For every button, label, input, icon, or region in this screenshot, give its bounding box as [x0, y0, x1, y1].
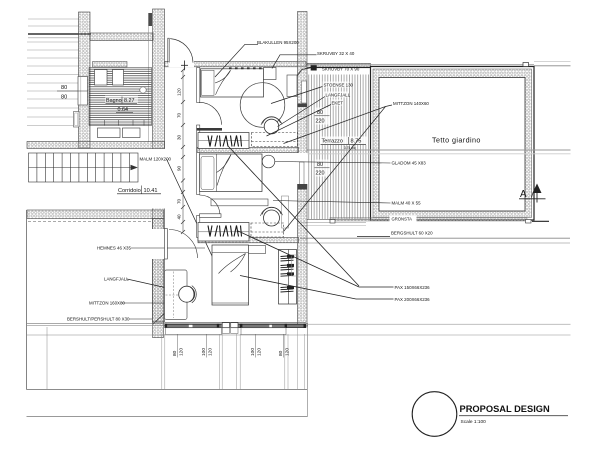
svg-text:80: 80 — [317, 162, 323, 168]
svg-text:MITTZON 160X80: MITTZON 160X80 — [89, 301, 125, 306]
svg-text:120: 120 — [207, 348, 213, 356]
svg-text:8.75: 8.75 — [351, 139, 362, 145]
svg-text:80: 80 — [278, 350, 284, 356]
svg-text:120: 120 — [178, 348, 184, 356]
svg-text:LANGFJALL: LANGFJALL — [326, 93, 351, 98]
svg-text:8.27: 8.27 — [124, 98, 135, 104]
svg-text:A: A — [520, 189, 527, 200]
svg-text:40: 40 — [177, 214, 182, 220]
svg-text:LANGFJALL: LANGFJALL — [104, 277, 129, 282]
svg-text:120: 120 — [256, 348, 262, 356]
svg-text:80: 80 — [61, 95, 67, 101]
svg-text:PAX 200X66X236: PAX 200X66X236 — [395, 297, 431, 302]
svg-text:10.41: 10.41 — [144, 188, 158, 194]
svg-text:70: 70 — [177, 198, 182, 204]
svg-text:90: 90 — [177, 165, 182, 171]
svg-text:SKRUVBY 70 X 90: SKRUVBY 70 X 90 — [322, 66, 360, 71]
svg-text:100: 100 — [201, 348, 207, 356]
svg-text:EKET: EKET — [332, 101, 344, 106]
svg-text:3.75 mq: 3.75 mq — [344, 146, 356, 150]
svg-text:PROPOSAL DESIGN: PROPOSAL DESIGN — [460, 404, 551, 414]
svg-text:120: 120 — [177, 88, 182, 96]
svg-text:GRONSTA: GRONSTA — [392, 216, 413, 221]
svg-text:80: 80 — [172, 350, 178, 356]
svg-text:Corridoio: Corridoio — [118, 188, 141, 194]
svg-text:80: 80 — [61, 85, 67, 91]
svg-text:MITTZON 140X60: MITTZON 140X60 — [393, 101, 429, 106]
svg-text:BERGSHULT 60 X20: BERGSHULT 60 X20 — [391, 231, 433, 236]
svg-text:GLADOM 45 X83: GLADOM 45 X83 — [392, 161, 427, 166]
svg-text:Tetto giardino: Tetto giardino — [432, 136, 481, 145]
svg-text:100: 100 — [250, 348, 256, 356]
svg-text:Terrazzo: Terrazzo — [322, 139, 343, 145]
svg-text:120: 120 — [284, 348, 290, 356]
svg-text:PAX 150X66X236: PAX 150X66X236 — [395, 285, 431, 290]
svg-text:Scale 1:100: Scale 1:100 — [461, 419, 487, 425]
svg-text:Bagno: Bagno — [106, 98, 122, 104]
svg-text:MALM 40 X 55: MALM 40 X 55 — [392, 201, 422, 206]
svg-text:70: 70 — [177, 112, 182, 118]
svg-text:220: 220 — [316, 171, 325, 177]
svg-text:BLAKULLEN 95X200: BLAKULLEN 95X200 — [257, 40, 299, 45]
svg-text:0.64: 0.64 — [118, 107, 129, 113]
svg-text:BERSHULT/PERSHULT 80 X30: BERSHULT/PERSHULT 80 X30 — [67, 317, 130, 322]
svg-text:HEMNES 46 X35: HEMNES 46 X35 — [97, 246, 131, 251]
svg-text:220: 220 — [316, 119, 325, 125]
svg-text:30: 30 — [177, 134, 182, 140]
svg-text:STOENSE 130: STOENSE 130 — [324, 83, 354, 88]
svg-text:SKRUVBY 32 X 40: SKRUVBY 32 X 40 — [317, 51, 355, 56]
